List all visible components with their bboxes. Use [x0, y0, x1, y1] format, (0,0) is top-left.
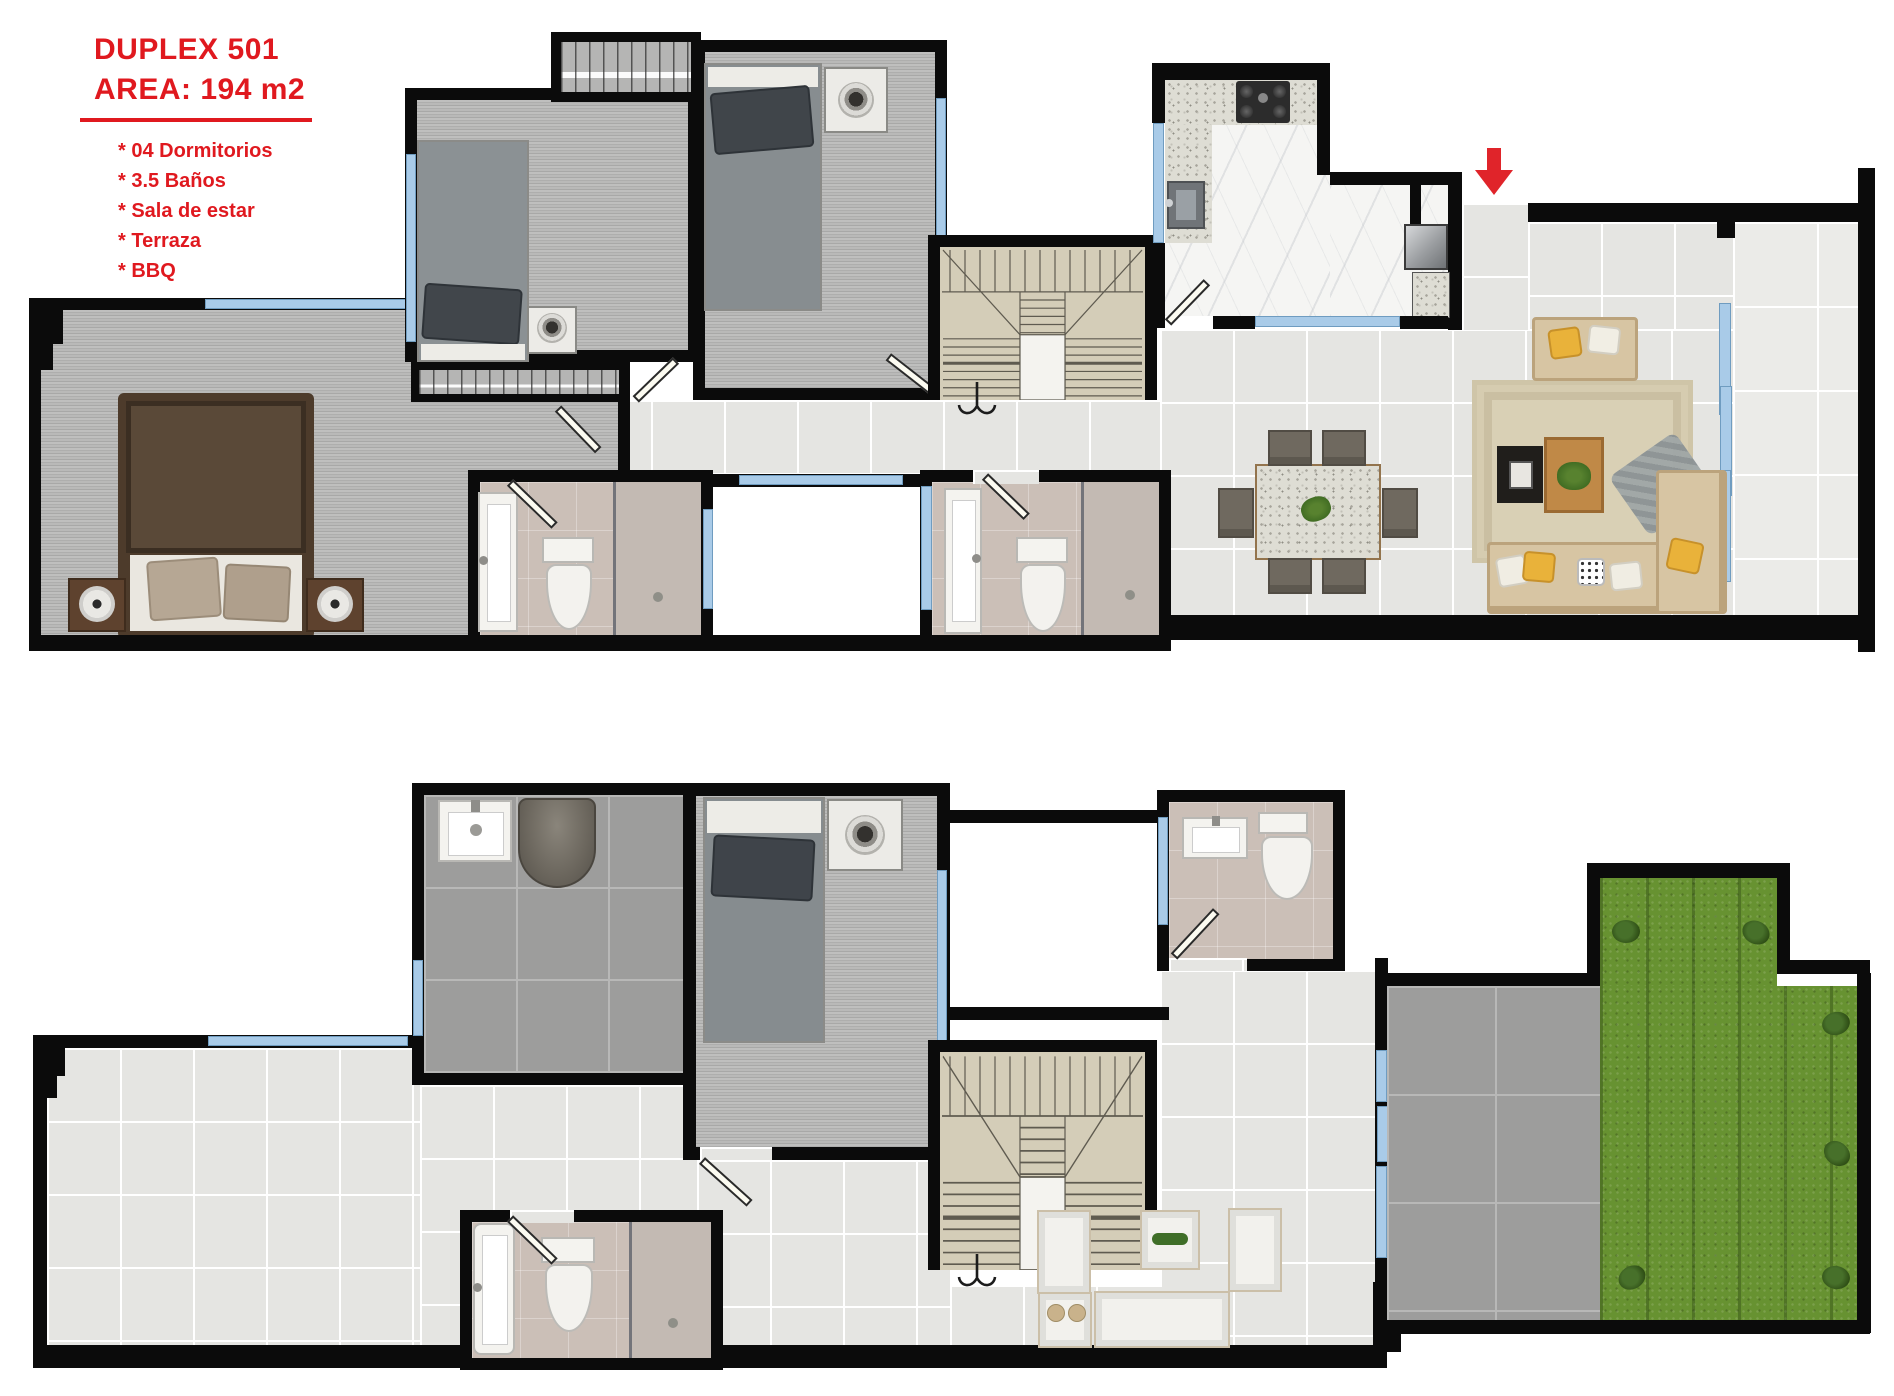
bed2-pillow — [421, 283, 523, 346]
burner-icon — [1273, 85, 1286, 98]
dining-chair — [1322, 558, 1366, 594]
master-bed-blanket — [126, 401, 306, 553]
lightwell-window — [739, 475, 903, 485]
sink-basin — [1176, 190, 1196, 220]
faucet-icon — [972, 554, 981, 563]
pillow-patterned — [1577, 558, 1605, 586]
burner-icon — [1240, 85, 1253, 98]
kitchen-sink — [1167, 181, 1205, 229]
bed2-headboard — [421, 344, 525, 360]
wall — [1317, 63, 1330, 175]
wall — [47, 1048, 65, 1076]
bathroom1-window — [703, 509, 713, 609]
entry-floor — [1462, 203, 1528, 330]
wall — [1587, 878, 1600, 986]
door-opening — [700, 1147, 772, 1160]
speaker-icon — [845, 815, 885, 855]
burner-icon — [1273, 105, 1286, 118]
drain-icon — [470, 824, 482, 836]
bedroom2-closet — [551, 32, 701, 102]
faucet-icon — [479, 556, 488, 565]
bed3-pillow — [709, 85, 814, 155]
sink-basin — [482, 1235, 508, 1345]
wall — [947, 1007, 1169, 1020]
kitchen-counter — [1412, 272, 1450, 318]
toilet3-tank — [1258, 812, 1308, 834]
bedroom2-window — [406, 154, 416, 342]
drain-icon — [1125, 590, 1135, 600]
plan-area: AREA: 194 m2 — [94, 70, 410, 110]
bbq-armchair — [1037, 1210, 1091, 1294]
wall — [1387, 973, 1600, 986]
dining-chair — [1268, 558, 1312, 594]
feature-bbq: * BBQ — [118, 256, 410, 286]
bedroom2-door-leaf — [633, 357, 680, 402]
wall — [1330, 172, 1462, 185]
burner-icon — [1068, 1304, 1086, 1322]
living-upper-floor — [1528, 222, 1733, 329]
feature-bathrooms: * 3.5 Baños — [118, 166, 410, 196]
bed4-headboard — [707, 801, 821, 833]
feature-bedrooms: * 04 Dormitorios — [118, 136, 410, 166]
speaker-icon — [838, 82, 874, 118]
water-heater-icon — [518, 798, 596, 888]
plant-icon — [1152, 1233, 1188, 1245]
shower-2 — [1081, 482, 1159, 635]
stair-down-hook-icon — [955, 380, 999, 420]
floor-plan-canvas: DUPLEX 501 AREA: 194 m2 * 04 Dormitorios… — [0, 0, 1894, 1396]
speaker-icon — [537, 313, 567, 343]
bed-4 — [703, 797, 825, 1043]
bed3-headboard — [708, 67, 818, 87]
bbq-armchair — [1228, 1208, 1282, 1292]
bed-3 — [704, 63, 822, 311]
wall — [1152, 243, 1165, 328]
wall — [1373, 1320, 1870, 1334]
wall — [41, 344, 53, 370]
master-pillow — [146, 557, 222, 622]
laundry-sink — [438, 800, 512, 862]
pillow-white — [1609, 560, 1644, 591]
black-tray — [1497, 446, 1543, 503]
armchair — [1532, 317, 1638, 381]
wall — [1448, 173, 1462, 330]
shower-1 — [613, 482, 701, 635]
master-bedroom-window — [205, 299, 407, 309]
toilet1-tank — [542, 537, 594, 563]
terrace-floor — [1387, 986, 1600, 1320]
bathroom2-window — [921, 486, 932, 610]
stair-down-hook-icon — [955, 1252, 999, 1292]
wall — [47, 1076, 57, 1098]
feature-terrace: * Terraza — [118, 226, 410, 256]
master-bed — [118, 393, 314, 639]
feature-list: * 04 Dormitorios * 3.5 Baños * Sala de e… — [118, 136, 410, 286]
bbq-grill — [1038, 1292, 1092, 1348]
wall — [41, 310, 63, 344]
bathroom3-window — [1158, 817, 1168, 925]
wall — [1213, 316, 1255, 329]
kitchen-window — [1153, 123, 1164, 243]
wall — [1777, 960, 1870, 974]
stove-dial-icon — [1258, 93, 1268, 103]
wall — [1160, 615, 1875, 640]
picture-frame-icon — [1509, 461, 1533, 489]
wall — [1410, 185, 1421, 226]
entry-down-arrow-icon — [1487, 148, 1501, 172]
balcony-floor — [1733, 222, 1858, 622]
drain-icon — [668, 1318, 678, 1328]
shower-4 — [629, 1222, 711, 1358]
entry-down-arrow-icon — [1475, 170, 1513, 195]
burner-icon — [1240, 105, 1253, 118]
faucet-icon — [1165, 199, 1173, 207]
bedroom4-window — [937, 870, 947, 1062]
dining-chair — [1322, 430, 1366, 466]
wall — [1858, 168, 1875, 652]
dining-chair — [1218, 488, 1254, 538]
wall — [29, 635, 1171, 651]
fridge-icon — [1404, 224, 1448, 270]
drain-icon — [653, 592, 663, 602]
bathroom4-sink — [473, 1223, 515, 1355]
header-underline — [80, 118, 312, 122]
terrace-sliding-door — [1376, 1050, 1387, 1102]
plant-icon — [1557, 462, 1591, 490]
stove-icon — [1236, 81, 1290, 123]
family-room-window — [208, 1036, 408, 1046]
bathroom3-sink — [1182, 817, 1248, 859]
dining-chair — [1382, 488, 1418, 538]
pillow-yellow — [1522, 551, 1556, 584]
lamp-icon — [79, 586, 115, 622]
wall — [1717, 222, 1735, 238]
bathroom2-sink — [944, 488, 982, 634]
hallway-closet — [411, 362, 627, 402]
master-pillow — [223, 563, 292, 622]
faucet-icon — [471, 800, 480, 812]
faucet-icon — [1212, 816, 1220, 826]
faucet-icon — [473, 1283, 482, 1292]
plan-title: DUPLEX 501 — [94, 30, 410, 70]
bed-2 — [417, 140, 529, 362]
bed4-pillow — [710, 834, 815, 901]
sink-basin — [487, 504, 511, 622]
pillow-yellow — [1547, 326, 1583, 360]
wall — [1857, 973, 1871, 1333]
toilet2-tank — [1016, 537, 1068, 563]
lamp-icon — [317, 586, 353, 622]
wall — [1400, 316, 1448, 329]
dining-chair — [1268, 430, 1312, 466]
wall — [947, 810, 1169, 823]
feature-livingroom: * Sala de estar — [118, 196, 410, 226]
wall — [1587, 863, 1790, 878]
kitchen-south-window — [1255, 316, 1400, 327]
pillow-yellow — [1665, 537, 1705, 575]
plan-header: DUPLEX 501 AREA: 194 m2 * 04 Dormitorios… — [80, 30, 410, 286]
door-opening — [1169, 958, 1247, 971]
bathroom1-sink — [478, 492, 518, 632]
wall — [1777, 863, 1790, 973]
coffee-table — [1544, 437, 1604, 513]
wall — [1152, 63, 1330, 80]
wall — [33, 1035, 47, 1368]
sink-basin — [1192, 827, 1240, 853]
pillow-white — [1587, 324, 1622, 355]
bbq-bench — [1094, 1291, 1230, 1348]
staircase-upper — [928, 235, 1157, 400]
wall — [1528, 203, 1875, 222]
laundry-window — [413, 960, 423, 1036]
burner-icon — [1047, 1304, 1065, 1322]
bush-icon — [1612, 920, 1640, 943]
terrace-sliding-door — [1376, 1166, 1387, 1258]
wall — [1152, 80, 1165, 123]
staircase-graphic — [940, 247, 1145, 400]
